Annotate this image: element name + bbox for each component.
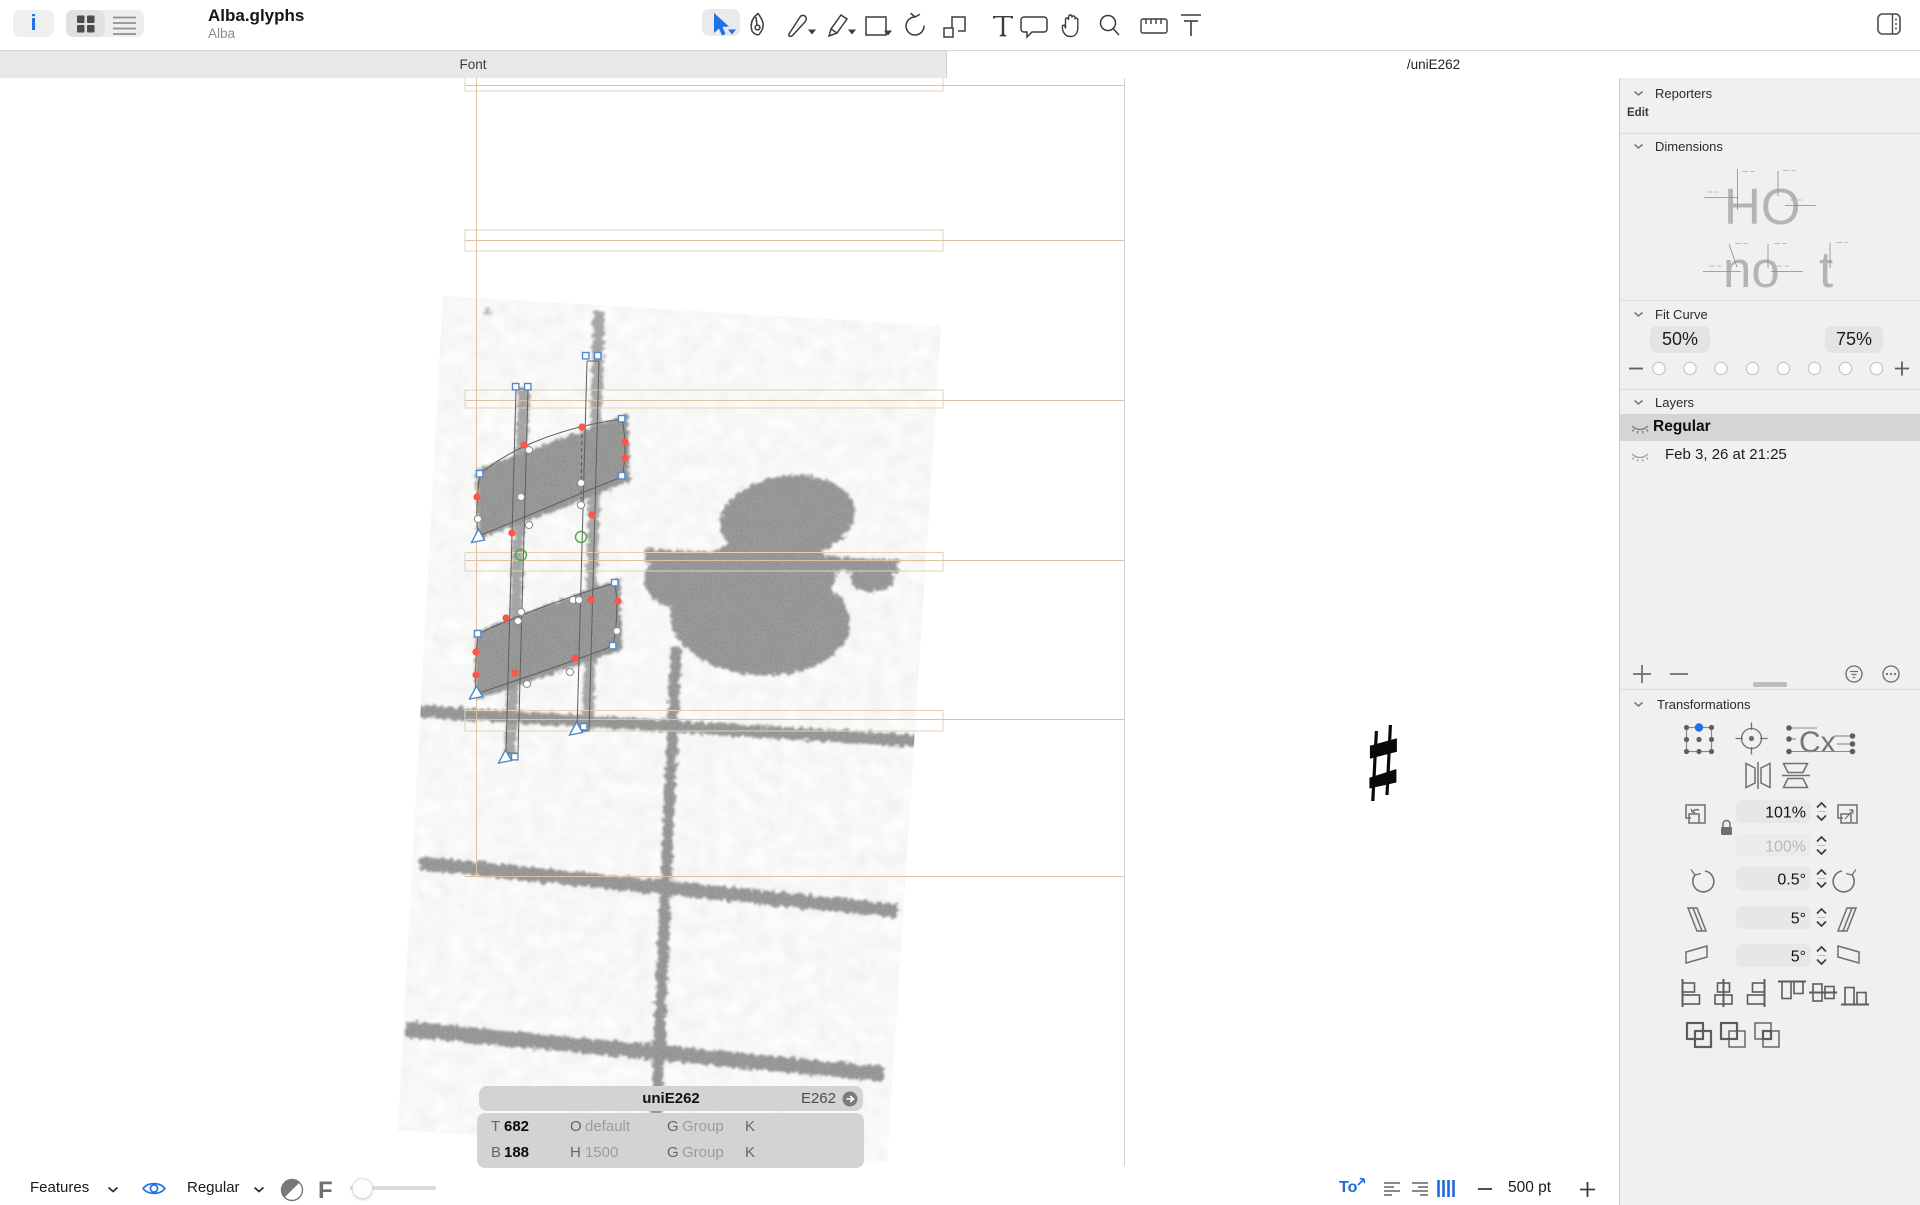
svg-text:t: t — [1819, 241, 1833, 298]
svg-text:5°: 5° — [1791, 949, 1806, 966]
svg-text:101%: 101% — [1765, 805, 1806, 822]
svg-text:HO: HO — [1724, 178, 1801, 235]
svg-text:Cx: Cx — [1799, 726, 1836, 759]
svg-text:0.5°: 0.5° — [1777, 872, 1806, 889]
svg-text:5°: 5° — [1791, 911, 1806, 928]
svg-text:100%: 100% — [1765, 839, 1806, 856]
svg-text:no: no — [1723, 241, 1780, 298]
